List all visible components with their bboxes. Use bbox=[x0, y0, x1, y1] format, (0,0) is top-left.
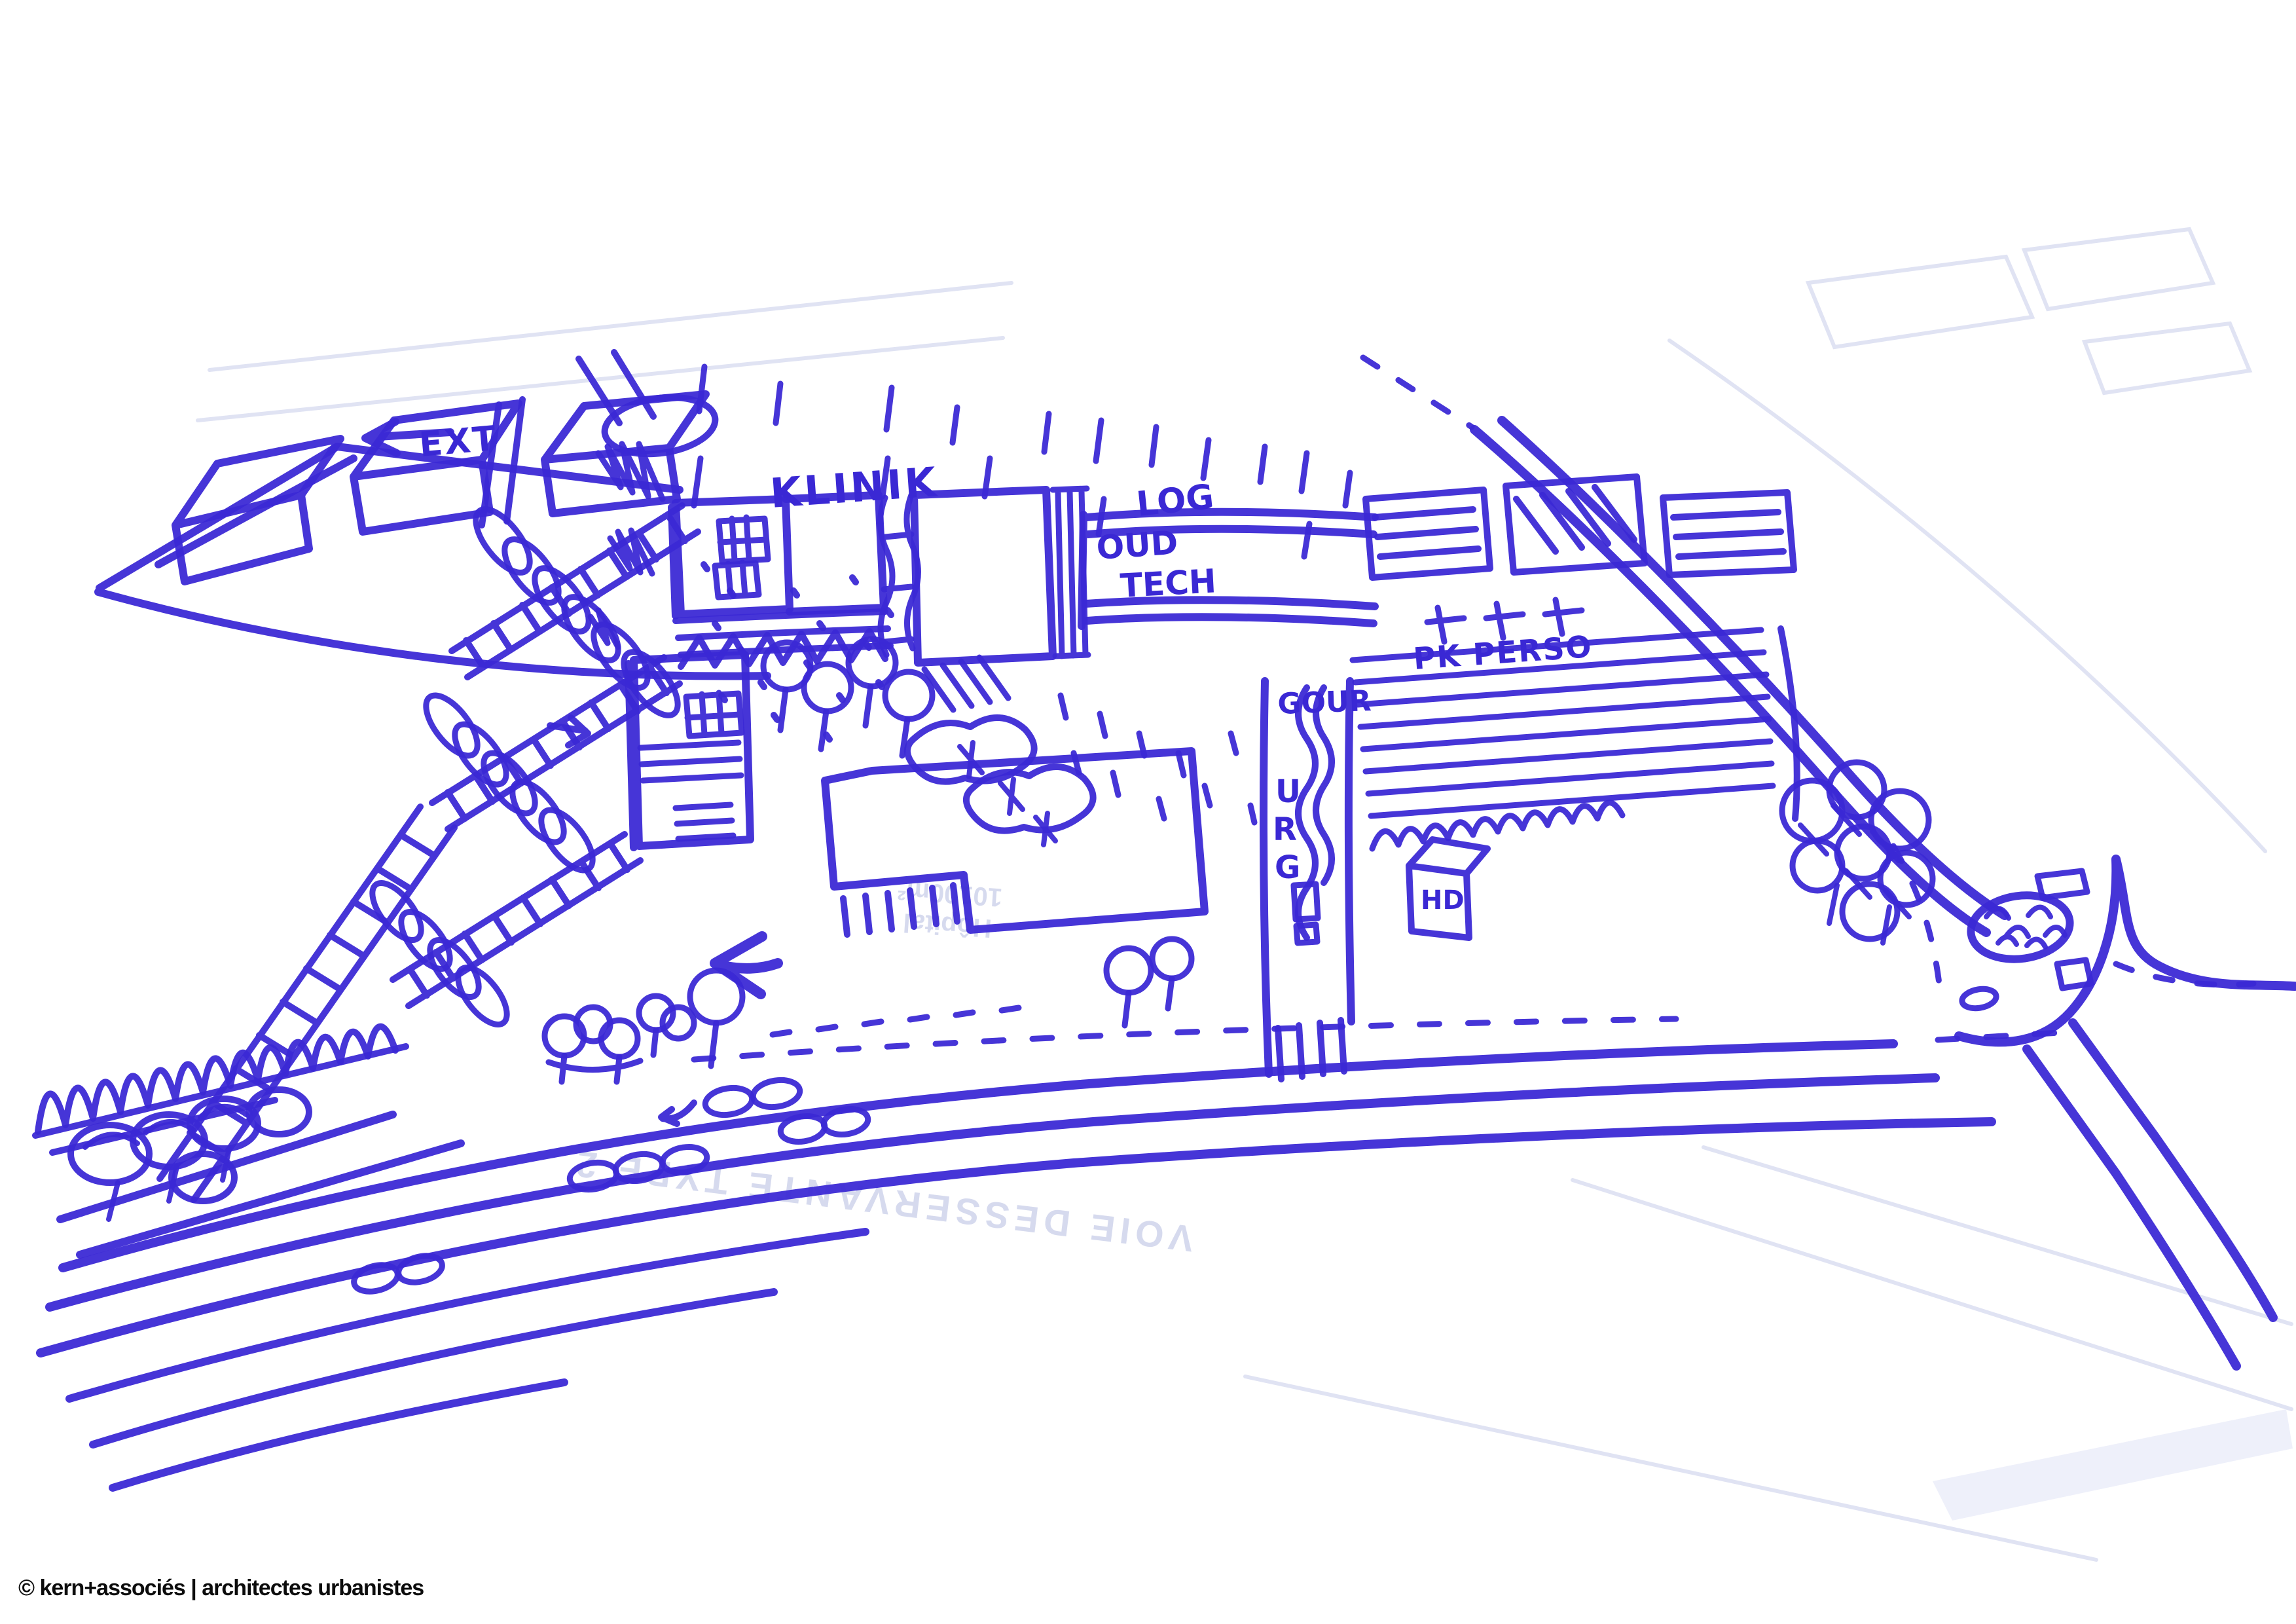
courtyard-trees bbox=[763, 639, 1254, 845]
tree-canopy bbox=[1152, 939, 1192, 978]
label-urg-r: R bbox=[1273, 811, 1297, 848]
masterplan-sketch: 10100m² Hôpital VOIE DESSERVANTE TYPE 2 bbox=[0, 0, 2296, 1624]
ext-ground-plane bbox=[98, 447, 767, 676]
boulevard-line bbox=[113, 1382, 564, 1488]
boulevard-dashes bbox=[694, 1019, 2082, 1060]
underlay-building-outline bbox=[2024, 229, 2213, 309]
hook-arrow-icon bbox=[661, 1103, 694, 1124]
window-grid bbox=[715, 563, 759, 597]
window-grid bbox=[686, 693, 742, 736]
right-block bbox=[1663, 492, 1794, 575]
entrance-arrow-icon bbox=[715, 936, 778, 994]
footer-credit: © kern+associés | architectes urbanistes bbox=[18, 1576, 424, 1600]
tree-canopy bbox=[1106, 948, 1151, 993]
scallop-row bbox=[1372, 803, 1622, 849]
road-branch-southeast bbox=[2027, 1023, 2273, 1366]
tree-canopy bbox=[1793, 841, 1842, 891]
scribble-trees bbox=[591, 444, 663, 647]
car bbox=[703, 1085, 754, 1118]
leaf-tree bbox=[466, 500, 539, 581]
label-urg-g: G bbox=[1275, 849, 1300, 886]
underlay-building-outline bbox=[1808, 257, 2032, 347]
underlay-road-curve bbox=[1669, 341, 2265, 851]
road-curve-east bbox=[1959, 859, 2295, 1042]
window-grid bbox=[719, 517, 768, 562]
label-log-line3: TECH bbox=[1120, 562, 1218, 605]
lollipop-tree bbox=[804, 664, 851, 711]
label-gour: GOUR bbox=[1277, 684, 1372, 721]
track-band-2 bbox=[432, 657, 680, 829]
car bbox=[351, 1261, 400, 1295]
klinik-block-c bbox=[914, 490, 1053, 663]
car bbox=[395, 1251, 445, 1286]
underlay-building-outline bbox=[2085, 323, 2250, 393]
underlay-guide-line bbox=[210, 283, 1011, 370]
frontage-trees bbox=[545, 939, 1192, 1082]
label-urg-u: U bbox=[1275, 773, 1301, 810]
car bbox=[751, 1077, 801, 1111]
shrub-blob bbox=[966, 767, 1093, 831]
label-log-line1: LOG bbox=[1135, 477, 1216, 525]
lollipop-tree bbox=[885, 672, 932, 719]
label-log-line2: OUD bbox=[1095, 523, 1179, 567]
label-hd: HD bbox=[1421, 885, 1465, 915]
ground-dashes bbox=[773, 1008, 1019, 1035]
facade-stripes bbox=[640, 743, 741, 839]
right-block bbox=[1366, 490, 1490, 578]
label-ext: EXT bbox=[418, 419, 500, 465]
ext-pole-strokes bbox=[482, 352, 653, 525]
tree-canopy bbox=[690, 970, 742, 1023]
boulevard-line bbox=[50, 1078, 1935, 1307]
underlay-road-line bbox=[1245, 1376, 2096, 1560]
tree-base bbox=[549, 1056, 640, 1082]
underlay-road-line bbox=[1704, 1147, 2291, 1324]
ink-layer bbox=[35, 352, 2295, 1488]
underlay-wedge bbox=[1933, 1409, 2293, 1521]
